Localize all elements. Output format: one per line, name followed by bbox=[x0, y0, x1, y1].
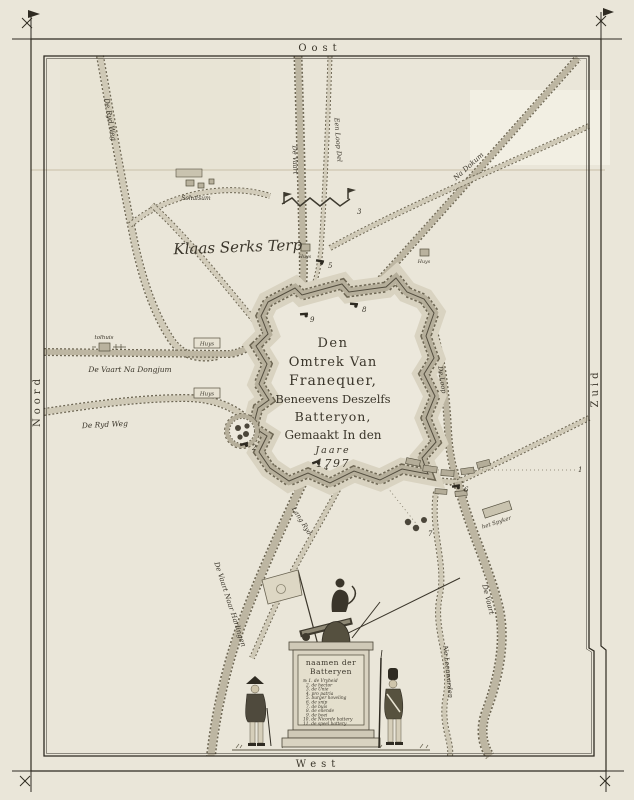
paper-shade-patch bbox=[60, 60, 260, 180]
map-canvas: 1 2 3 4 5 6 7 8 9 De Ryd Weg De Vaart Na… bbox=[0, 0, 634, 800]
compass-west-label: West bbox=[296, 759, 341, 770]
label-huys-box-2: Huys bbox=[199, 392, 214, 398]
label-schalsum: Schalsum bbox=[181, 195, 211, 202]
battery-number-6: 6 bbox=[464, 486, 469, 494]
battery-number-3: 3 bbox=[357, 208, 362, 216]
label-vaart-dongjum: De Vaart Na Dongjum bbox=[87, 365, 171, 374]
tablet-title-line-2: Batteryen bbox=[310, 667, 352, 676]
antique-map-sheet: 1 2 3 4 5 6 7 8 9 De Ryd Weg De Vaart Na… bbox=[0, 0, 634, 800]
battery-entry-11: 11. de speel battery bbox=[303, 722, 347, 727]
cartouche-line-6: Gemaakt In den bbox=[284, 428, 381, 442]
cartouche-line-7: Jaare bbox=[313, 445, 350, 456]
battery-number-8: 8 bbox=[362, 306, 367, 314]
battery-number-7: 7 bbox=[428, 530, 433, 538]
label-huys-2: Huys bbox=[417, 259, 431, 265]
cartouche-line-1: Den bbox=[318, 336, 349, 351]
huys-building-2 bbox=[420, 249, 429, 256]
label-de-vaart-n: De Vaart bbox=[290, 144, 299, 174]
compass-north-label: Noord bbox=[32, 375, 43, 427]
huys-building-1 bbox=[301, 244, 310, 251]
cartouche-line-4: Beneevens Deszelfs bbox=[275, 392, 390, 406]
tablet-title-line-1: naamen der bbox=[306, 658, 356, 667]
grenadier-cap bbox=[388, 668, 398, 680]
battery-number-9: 9 bbox=[310, 316, 315, 324]
cartouche-line-2: Omtrek Van bbox=[289, 355, 377, 370]
battery-number-5: 5 bbox=[328, 262, 333, 270]
compass-south-label: Zuid bbox=[590, 369, 601, 408]
cartouche-line-3: Franequer, bbox=[289, 373, 377, 389]
battery-number-2: 2 bbox=[251, 444, 257, 452]
label-tolhuis: tolhuis bbox=[95, 335, 114, 341]
cartouche-line-8: 1797 bbox=[316, 457, 350, 470]
compass-east-label: Oost bbox=[298, 43, 341, 54]
cartouche-line-5: Batteryon, bbox=[295, 409, 372, 424]
label-huys-box-1: Huys bbox=[199, 342, 214, 348]
label-huys-1: Huys bbox=[298, 254, 312, 260]
battery-number-1: 1 bbox=[578, 466, 582, 474]
